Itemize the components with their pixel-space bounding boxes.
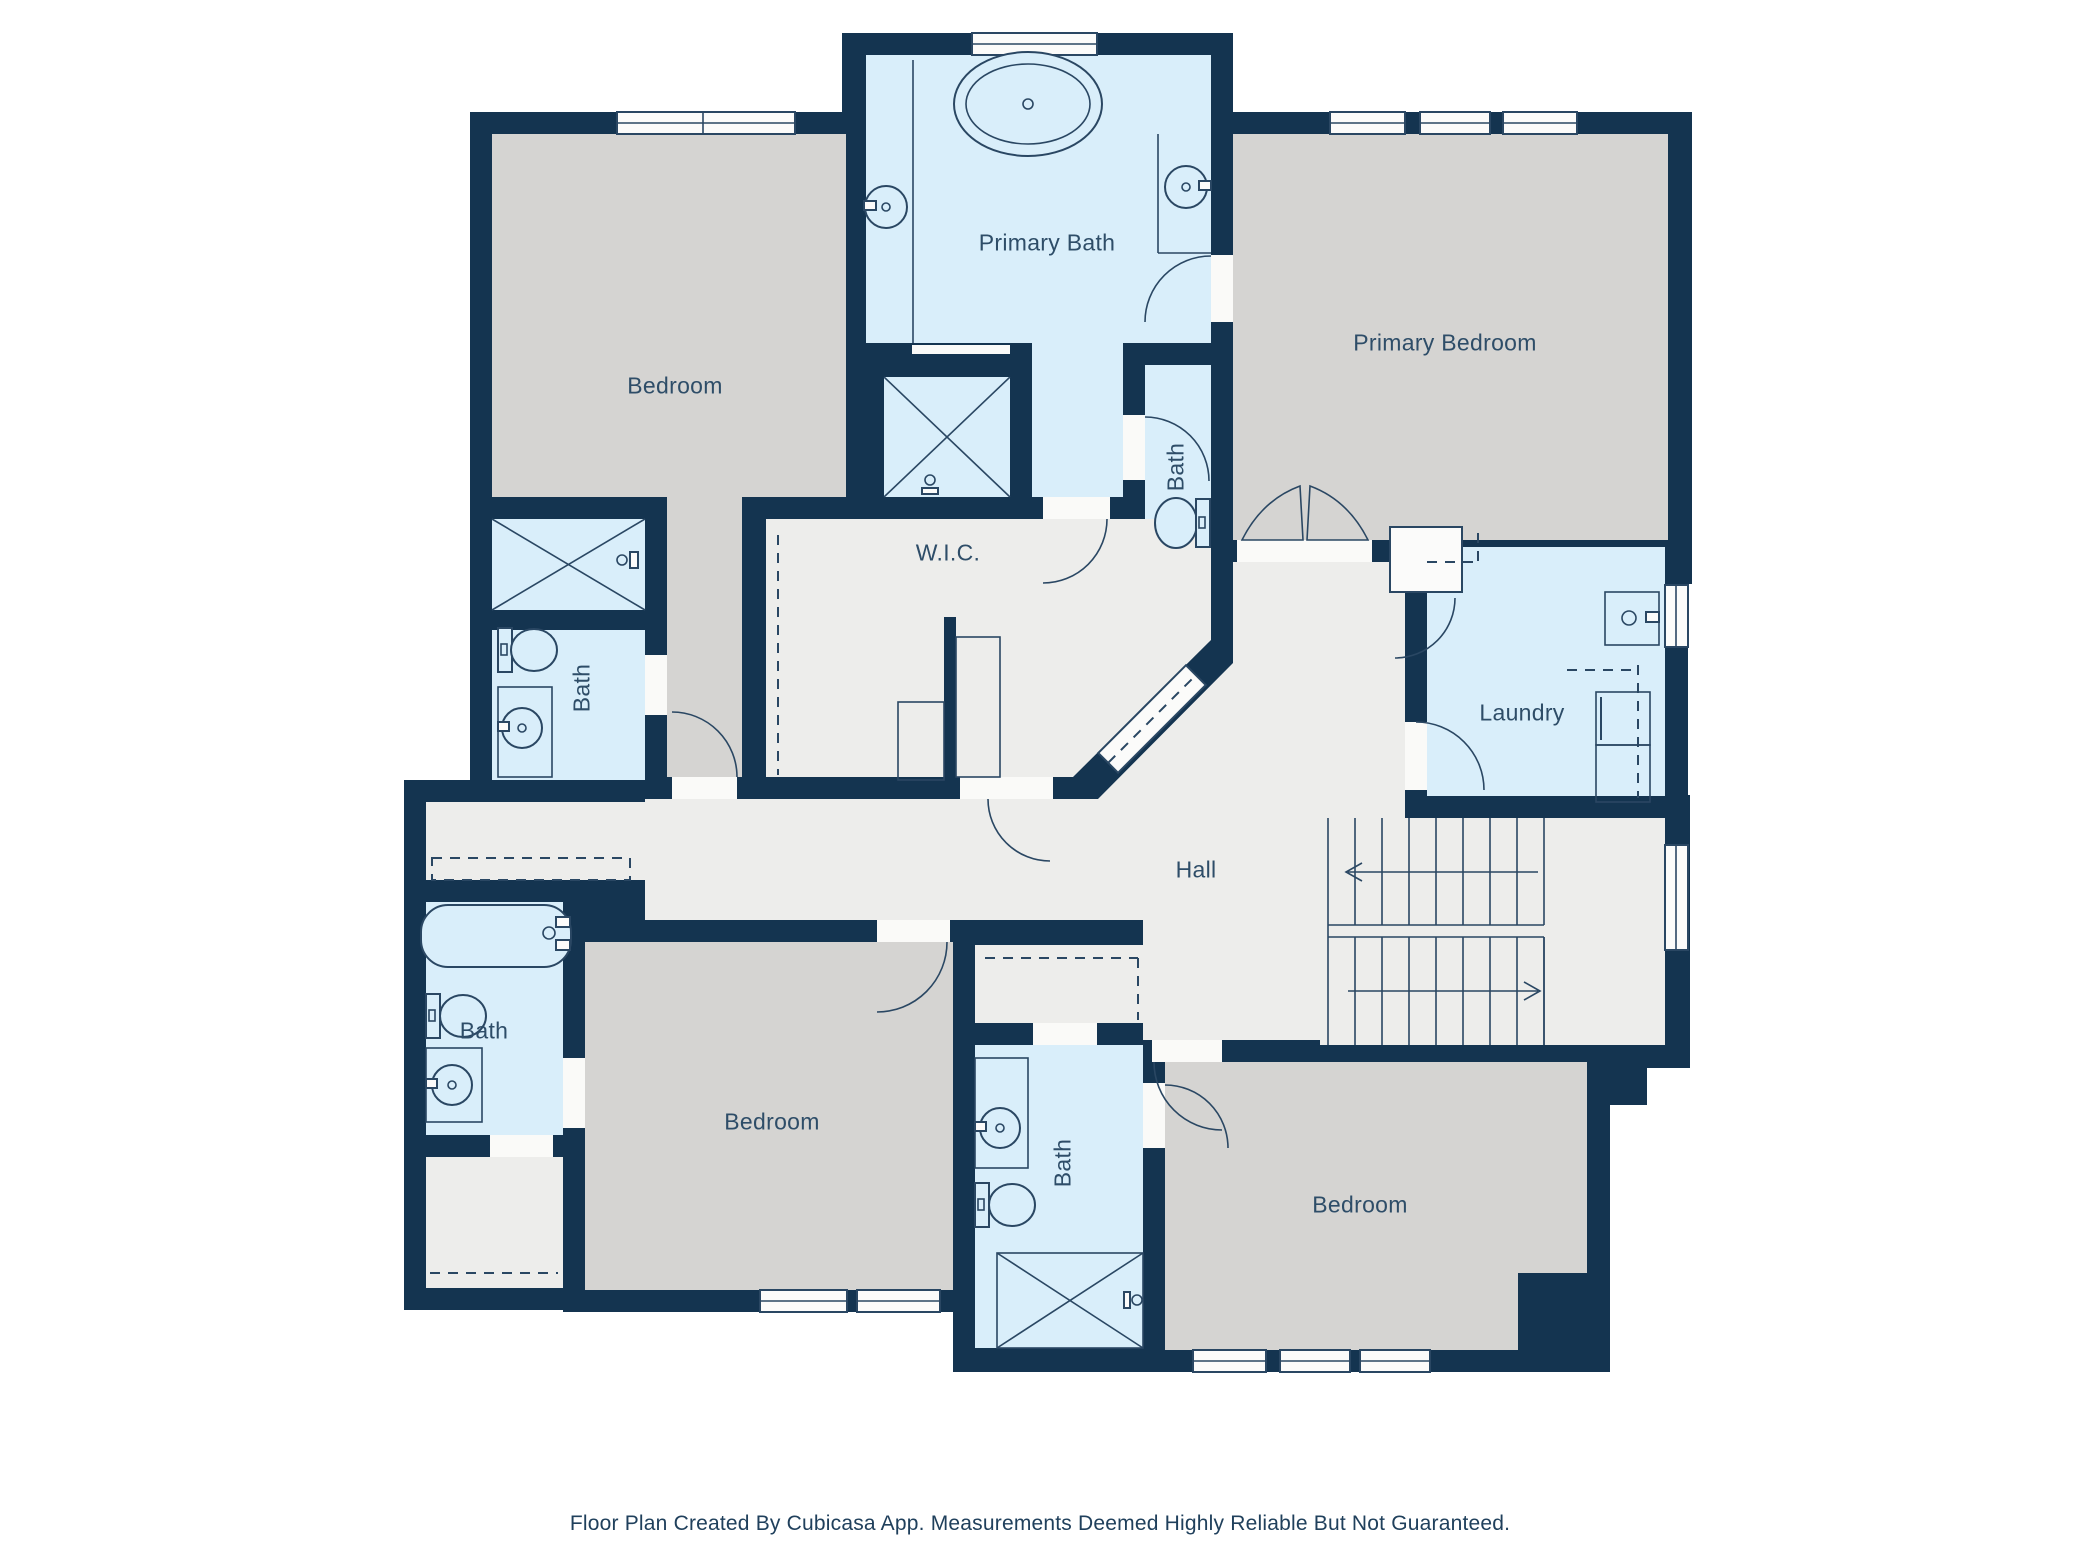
closet-bottom-left-floor	[426, 1157, 563, 1288]
toilet-icon	[498, 628, 557, 672]
room-label-bedroom-bottom-center: Bedroom	[724, 1109, 819, 1136]
room-label-bath-bottom-center: Bath	[1050, 1139, 1077, 1188]
closet-bottom-center-floor	[975, 945, 1143, 1023]
window	[1503, 112, 1577, 134]
sink-icon	[864, 186, 907, 228]
room-label-hall: Hall	[1176, 857, 1217, 884]
room-label-bath-wc: Bath	[1163, 443, 1190, 492]
window	[857, 1290, 940, 1312]
bedroom-top-left-floor	[492, 134, 846, 497]
room-label-bath-middle: Bath	[569, 664, 596, 713]
window	[760, 1290, 847, 1312]
window	[1665, 585, 1688, 647]
room-label-bath-bottom-left: Bath	[460, 1018, 509, 1045]
room-label-primary-bedroom: Primary Bedroom	[1353, 330, 1536, 357]
room-label-wic: W.I.C.	[916, 540, 980, 567]
room-label-laundry: Laundry	[1479, 700, 1564, 727]
bathtub-icon	[954, 52, 1102, 156]
floor-plan: Primary Bath Primary Bedroom Bedroom W.I…	[0, 0, 2080, 1560]
window	[1665, 845, 1688, 950]
toilet-icon	[975, 1183, 1035, 1227]
window	[1360, 1350, 1430, 1372]
laundry-closet	[1390, 527, 1462, 592]
footer-disclaimer: Floor Plan Created By Cubicasa App. Meas…	[0, 1512, 2080, 1536]
room-label-bedroom-bottom-right: Bedroom	[1312, 1192, 1407, 1219]
toilet-icon	[1155, 498, 1210, 548]
stairwell-floor	[1320, 818, 1665, 1045]
room-label-primary-bath: Primary Bath	[979, 230, 1116, 257]
window	[1330, 112, 1405, 134]
room-label-bedroom-top-left: Bedroom	[627, 373, 722, 400]
window	[1280, 1350, 1350, 1372]
window	[617, 112, 795, 134]
window	[1420, 112, 1490, 134]
bathtub-icon	[421, 905, 571, 967]
window	[1193, 1350, 1266, 1372]
